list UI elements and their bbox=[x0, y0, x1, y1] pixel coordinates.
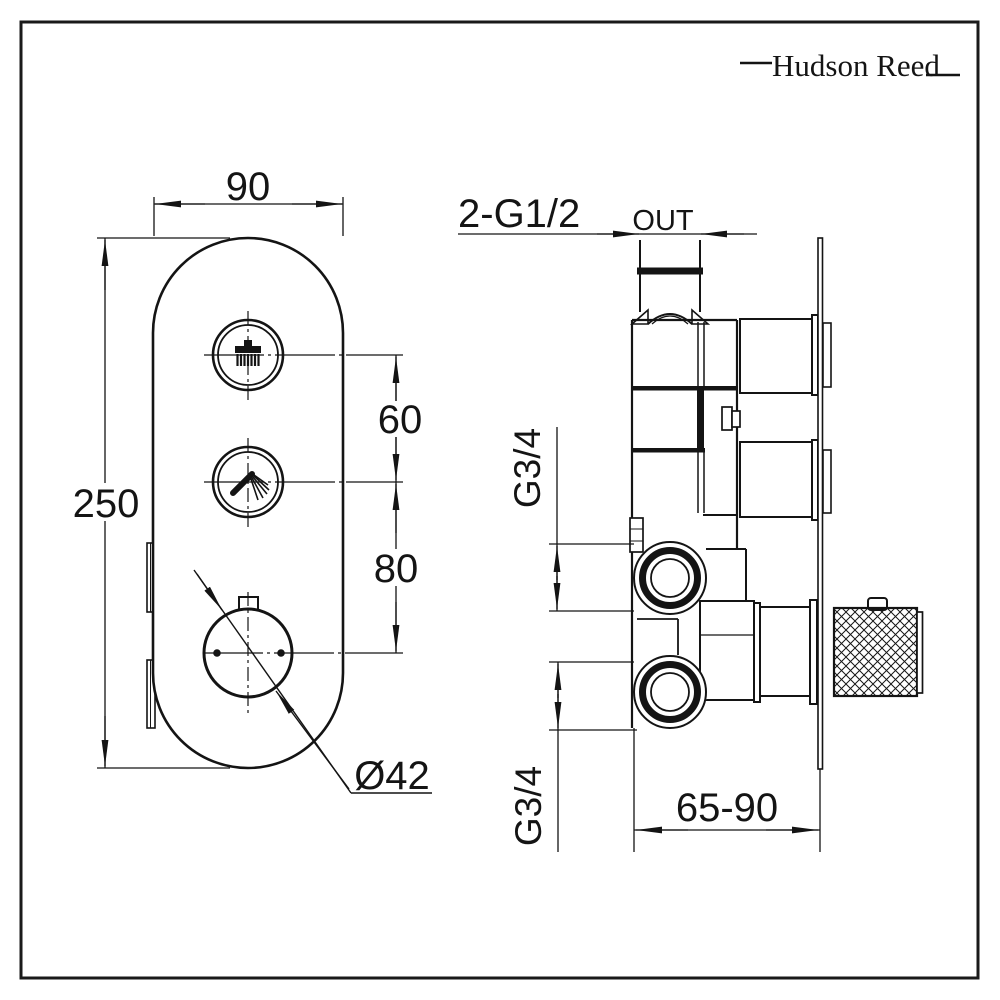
outlet-pipe bbox=[632, 240, 708, 324]
technical-drawing-sheet: 90 250 60 80 bbox=[0, 0, 1000, 1000]
fixing-clip bbox=[630, 518, 643, 552]
dim-inlet-top-label: G3/4 bbox=[507, 428, 548, 508]
dim-inlet-bottom-label: G3/4 bbox=[508, 766, 549, 846]
inlet-port-top bbox=[633, 541, 707, 615]
dial-marker-right bbox=[277, 649, 285, 657]
dim-button-spacing-label: 60 bbox=[378, 398, 423, 442]
side-view: 2-G1/2 OUT G3/4 G3/4 65-90 bbox=[458, 192, 923, 852]
wall-plate bbox=[818, 238, 823, 769]
dial-marker-left bbox=[213, 649, 221, 657]
inlet-port-bottom bbox=[633, 655, 707, 729]
dim-dial-spacing-label: 80 bbox=[374, 547, 419, 591]
body-screw bbox=[722, 407, 740, 430]
dim-depth-label: 65-90 bbox=[676, 786, 778, 830]
drawing-canvas: 90 250 60 80 bbox=[0, 0, 1000, 1000]
dim-inlet-top bbox=[549, 427, 634, 611]
brand-logo: Hudson Reed bbox=[740, 48, 960, 83]
control-stem bbox=[754, 600, 817, 704]
dim-outlet-threads-label: 2-G1/2 bbox=[458, 192, 580, 236]
dim-dial-diameter-label: Ø42 bbox=[354, 754, 430, 798]
knurled-knob bbox=[834, 598, 923, 696]
dim-inlet-bottom bbox=[549, 662, 637, 852]
dim-height-label: 250 bbox=[73, 482, 140, 526]
dim-width-label: 90 bbox=[226, 165, 271, 209]
outlet-label: OUT bbox=[632, 205, 694, 237]
front-view: 90 250 60 80 bbox=[73, 165, 432, 798]
brand-logo-text: Hudson Reed bbox=[772, 48, 940, 83]
